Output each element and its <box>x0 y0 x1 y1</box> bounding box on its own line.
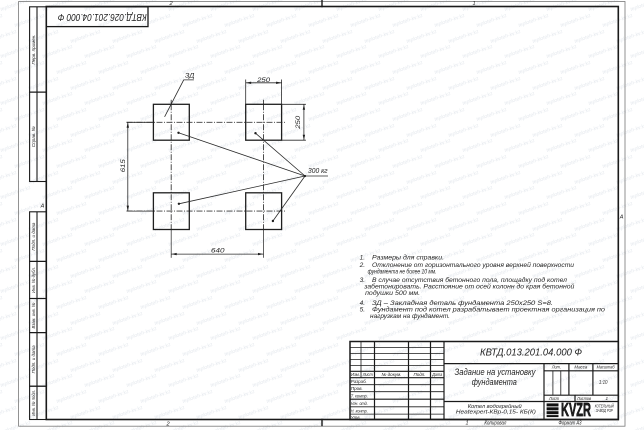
svg-text:Подп. и дата: Подп. и дата <box>31 222 36 250</box>
svg-text:Подп.: Подп. <box>414 372 426 377</box>
svg-text:640: 640 <box>211 247 225 254</box>
svg-text:Размеры для справки.: Размеры для справки. <box>372 254 444 262</box>
svg-text:Утв.: Утв. <box>351 415 361 420</box>
svg-text:Формат А3: Формат А3 <box>559 421 582 427</box>
svg-text:Взам. инв. №: Взам. инв. № <box>31 302 36 328</box>
svg-text:нагрузкам на фундамент.: нагрузкам на фундамент. <box>370 312 450 320</box>
svg-text:Подп. и дата: Подп. и дата <box>31 345 36 373</box>
svg-text:А: А <box>40 204 45 210</box>
svg-text:Задание на установку: Задание на установку <box>455 367 537 377</box>
svg-text:КВТД.013.201.04.000 Ф: КВТД.013.201.04.000 Ф <box>480 347 582 359</box>
svg-text:5.: 5. <box>360 306 366 313</box>
svg-text:615: 615 <box>120 159 127 172</box>
svg-text:Масштаб: Масштаб <box>597 365 615 370</box>
svg-text:Перв. примен.: Перв. примен. <box>31 35 36 65</box>
svg-text:250: 250 <box>256 77 270 84</box>
svg-text:1: 1 <box>472 1 475 7</box>
svg-text:фундамента: фундамента <box>472 377 517 387</box>
svg-text:1:10: 1:10 <box>599 380 608 386</box>
svg-text:Т. контр.: Т. контр. <box>351 394 368 399</box>
svg-text:Изм.: Изм. <box>351 372 360 377</box>
svg-text:Нач. отд.: Нач. отд. <box>351 401 368 406</box>
svg-text:подушки 500 мм.: подушки 500 мм. <box>365 289 420 297</box>
svg-text:Heatexpert-КВр-0,15- КБ(К): Heatexpert-КВр-0,15- КБ(К) <box>456 410 536 416</box>
svg-text:Дата: Дата <box>431 372 442 377</box>
svg-text:250: 250 <box>295 116 302 130</box>
svg-text:Справ. №: Справ. № <box>31 126 36 147</box>
svg-text:Инв. № подл.: Инв. № подл. <box>31 390 36 416</box>
svg-text:1: 1 <box>466 421 469 427</box>
svg-text:№ докум.: № докум. <box>382 372 402 377</box>
svg-text:фундамента не более 10 мм.: фундамента не более 10 мм. <box>368 267 437 275</box>
svg-text:300 кг: 300 кг <box>308 166 328 175</box>
svg-text:Инв. № дубл.: Инв. № дубл. <box>31 267 36 293</box>
svg-text:Лист: Лист <box>362 372 373 377</box>
svg-text:Масса: Масса <box>574 365 587 370</box>
svg-text:Разраб.: Разраб. <box>351 379 367 384</box>
svg-text:Лит.: Лит. <box>551 365 561 370</box>
svg-text:КВТД.026.201.04.000 Ф: КВТД.026.201.04.000 Ф <box>58 11 147 23</box>
svg-text:Пров.: Пров. <box>351 386 363 391</box>
svg-text:Копировал: Копировал <box>484 421 506 427</box>
svg-text:1: 1 <box>606 396 609 401</box>
svg-text:2.: 2. <box>359 262 366 269</box>
svg-text:Н. контр.: Н. контр. <box>351 409 368 414</box>
svg-text:ЗАВОД РЗР: ЗАВОД РЗР <box>596 408 613 413</box>
svg-text:А: А <box>619 215 624 221</box>
svg-text:ЗД: ЗД <box>185 73 195 80</box>
svg-text:1.: 1. <box>360 255 366 262</box>
svg-text:Лист: Лист <box>548 396 559 401</box>
svg-text:KVZR: KVZR <box>561 400 591 420</box>
